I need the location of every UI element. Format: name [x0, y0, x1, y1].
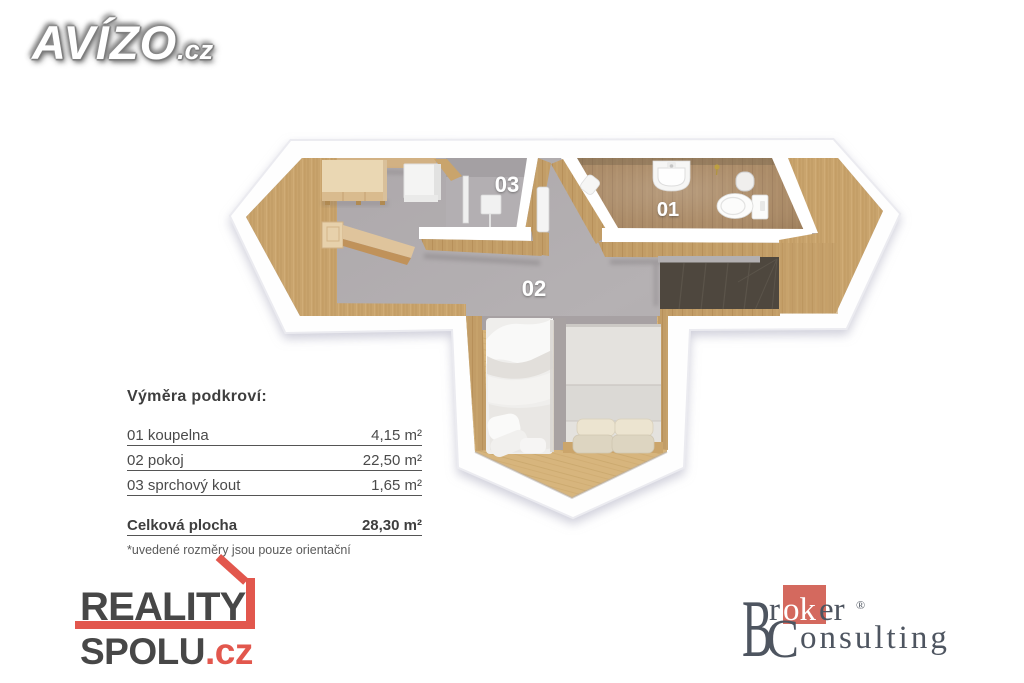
svg-text:03: 03	[495, 172, 519, 197]
svg-text:02: 02	[522, 276, 546, 301]
svg-text:01: 01	[657, 199, 679, 221]
